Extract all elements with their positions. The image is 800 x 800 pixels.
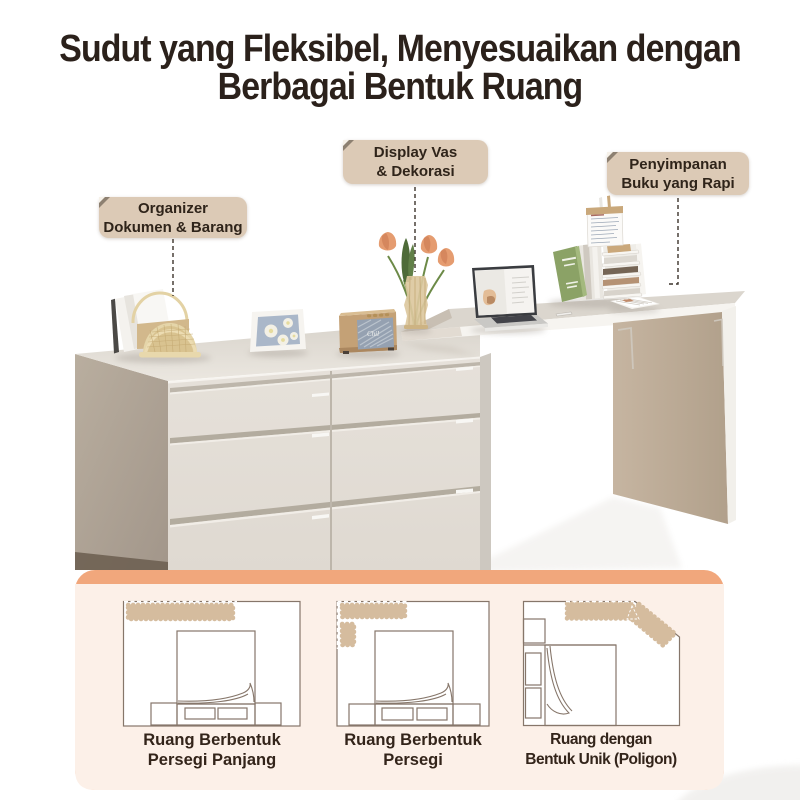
svg-text:Chil: Chil	[367, 330, 379, 338]
